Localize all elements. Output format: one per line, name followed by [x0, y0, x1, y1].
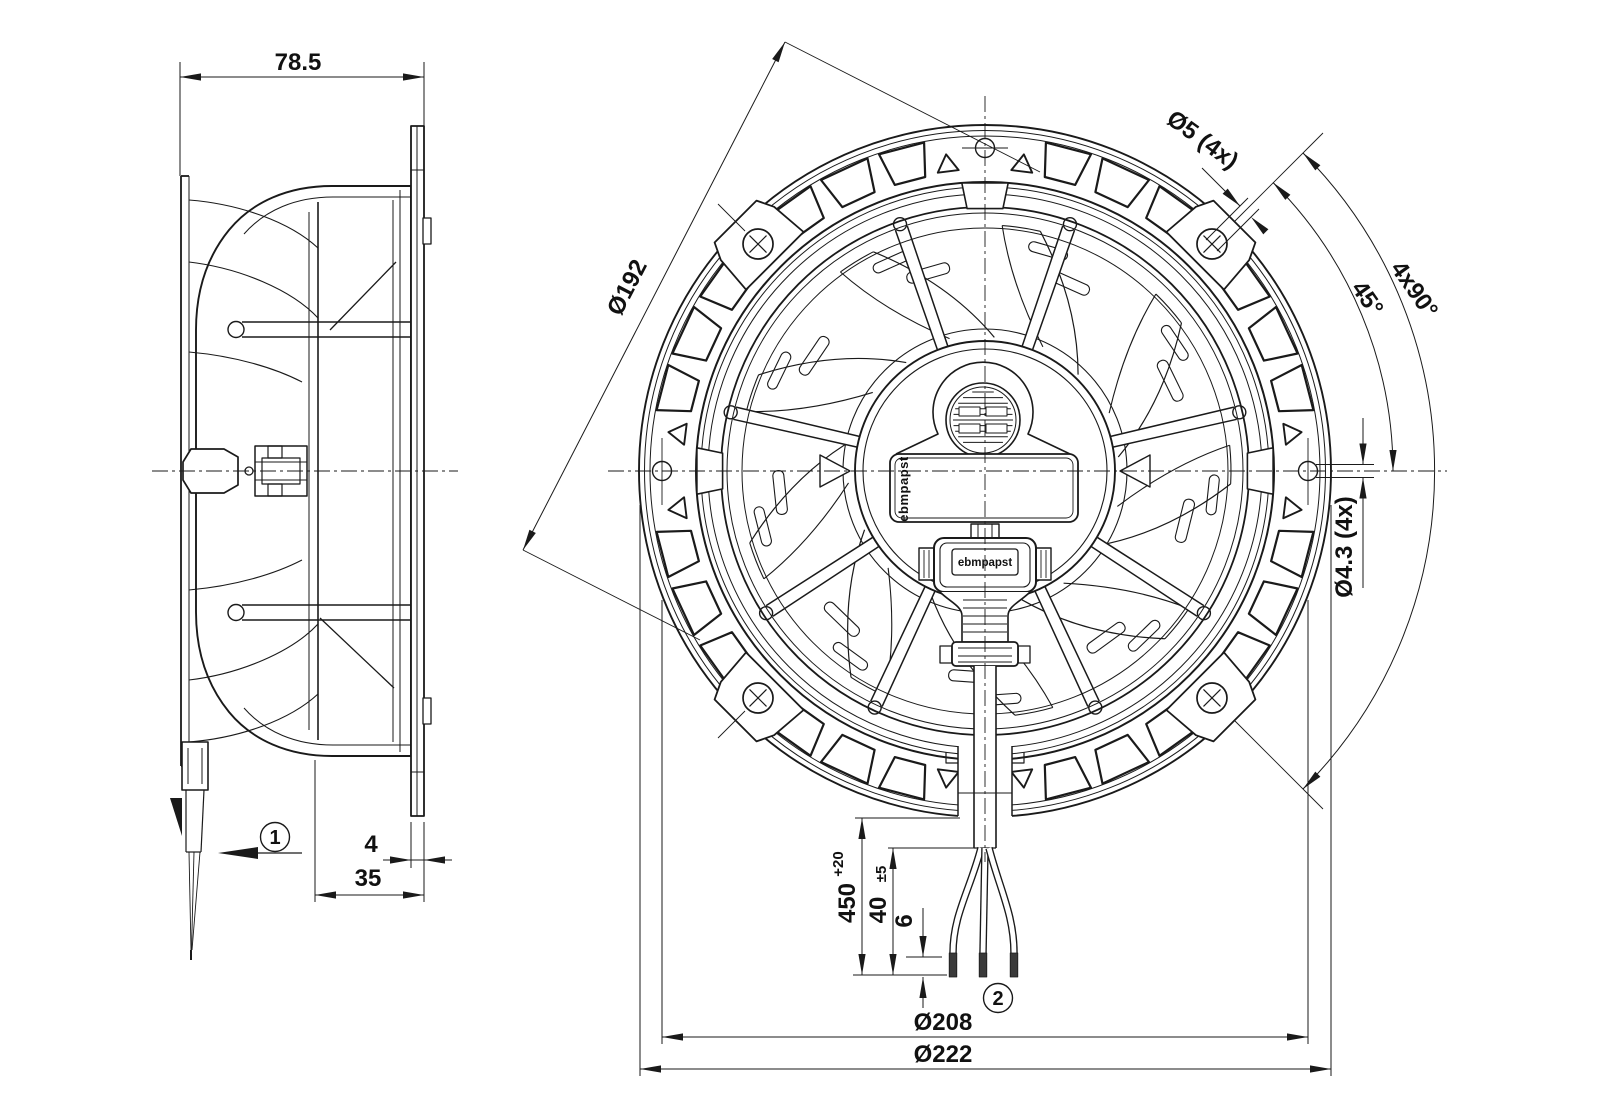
dim-outer-diameter: Ø222	[914, 1041, 973, 1068]
wire-middle	[983, 848, 985, 953]
dim-housing-depth: 35	[355, 865, 382, 892]
side-view	[170, 126, 431, 960]
dim-cable-length: 450	[834, 883, 861, 923]
drawing-sheet: 78.5 4 35 Ø192 Ø5 (4x) 4x90° 45° Ø4.3 (4…	[0, 0, 1612, 1101]
dim-strip-length: 6	[891, 914, 918, 927]
hub-logo: ebmpapst	[896, 456, 911, 522]
wire-stripped-end	[1010, 953, 1018, 977]
dim-hole-pattern: 4x90°	[1385, 256, 1443, 323]
cable-side	[189, 852, 191, 950]
technical-drawing-svg: 78.5 4 35 Ø192 Ø5 (4x) 4x90° 45° Ø4.3 (4…	[0, 0, 1612, 1101]
dim-hole-angle: 45°	[1346, 276, 1389, 321]
cable-clamp-side	[182, 742, 208, 790]
dim-inlet-diameter: Ø192	[602, 255, 653, 320]
dim-wire-free-length-tol: ±5	[873, 866, 890, 883]
dim-flange-thickness: 4	[364, 831, 378, 858]
dim-flange-hole: Ø4.3 (4x)	[1331, 496, 1358, 597]
dim-mounting-hole: Ø5 (4x)	[1162, 105, 1244, 175]
nameplate	[890, 454, 1078, 522]
dim-cable-length-tol: +20	[830, 851, 847, 876]
connector-logo: ebmpapst	[958, 557, 1012, 569]
airflow-direction-arrow	[218, 847, 258, 859]
dim-wire-free-length: 40	[865, 897, 892, 924]
dim-pitch-circle: Ø208	[914, 1009, 973, 1036]
callout-2-label: 2	[992, 988, 1003, 1010]
wire-stripped-end	[949, 953, 957, 977]
dim-depth-total: 78.5	[275, 49, 322, 76]
callout-1-label: 1	[269, 827, 280, 849]
wire-stripped-end	[979, 953, 987, 977]
